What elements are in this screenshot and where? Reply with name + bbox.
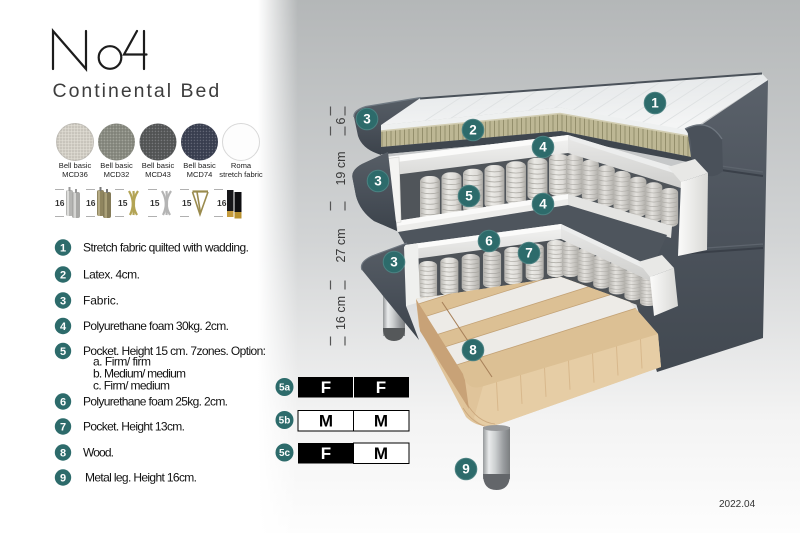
- svg-text:9: 9: [60, 473, 66, 485]
- svg-text:MCD32: MCD32: [104, 170, 130, 179]
- svg-text:5: 5: [465, 189, 473, 204]
- svg-text:5a: 5a: [279, 383, 291, 394]
- svg-text:16: 16: [217, 198, 227, 208]
- svg-text:1: 1: [60, 243, 66, 255]
- svg-text:Metal leg. Height 16cm.: Metal leg. Height 16cm.: [85, 471, 197, 485]
- svg-text:Fabric.: Fabric.: [83, 294, 119, 308]
- svg-text:1: 1: [651, 96, 659, 111]
- svg-text:F: F: [376, 378, 386, 397]
- svg-text:4: 4: [60, 321, 67, 333]
- svg-text:6: 6: [485, 234, 493, 249]
- svg-text:16 cm: 16 cm: [334, 296, 348, 330]
- svg-text:4: 4: [539, 140, 547, 155]
- svg-text:27 cm: 27 cm: [334, 228, 348, 262]
- svg-text:c. Firm/ medium: c. Firm/ medium: [93, 379, 170, 393]
- svg-text:F: F: [321, 378, 331, 397]
- svg-text:MCD74: MCD74: [187, 170, 213, 179]
- svg-text:Bell basic: Bell basic: [100, 161, 133, 170]
- svg-text:8: 8: [469, 343, 477, 358]
- svg-text:7: 7: [525, 246, 533, 261]
- svg-text:F: F: [321, 444, 331, 463]
- svg-text:Stretch fabric quilted with wa: Stretch fabric quilted with wadding.: [83, 241, 249, 255]
- svg-text:M: M: [374, 444, 388, 463]
- svg-text:6: 6: [60, 397, 66, 409]
- svg-text:Pocket. Height 13cm.: Pocket. Height 13cm.: [83, 420, 185, 434]
- svg-text:15: 15: [182, 198, 192, 208]
- svg-text:MCD36: MCD36: [62, 170, 88, 179]
- svg-text:16: 16: [86, 198, 96, 208]
- svg-text:7: 7: [60, 422, 66, 434]
- svg-text:15: 15: [150, 198, 160, 208]
- svg-text:Roma: Roma: [231, 161, 252, 170]
- svg-text:Bell basic: Bell basic: [183, 161, 216, 170]
- svg-text:19 cm: 19 cm: [334, 151, 348, 185]
- svg-text:stretch fabric: stretch fabric: [219, 170, 263, 179]
- svg-text:8: 8: [60, 448, 66, 460]
- svg-text:2: 2: [469, 123, 477, 138]
- svg-text:Bell basic: Bell basic: [142, 161, 175, 170]
- svg-text:4: 4: [539, 197, 547, 212]
- svg-text:3: 3: [60, 296, 66, 308]
- svg-text:Polyurethane foam 30kg. 2cm.: Polyurethane foam 30kg. 2cm.: [83, 319, 229, 333]
- svg-text:16: 16: [55, 198, 65, 208]
- svg-text:M: M: [319, 412, 333, 431]
- svg-text:Bell basic: Bell basic: [59, 161, 92, 170]
- svg-text:5c: 5c: [279, 448, 291, 459]
- svg-text:3: 3: [363, 112, 371, 127]
- svg-text:15: 15: [118, 198, 128, 208]
- svg-text:2022.04: 2022.04: [719, 499, 756, 510]
- svg-text:3: 3: [390, 255, 398, 270]
- svg-text:Wood.: Wood.: [83, 446, 114, 460]
- svg-text:Latex. 4cm.: Latex. 4cm.: [83, 268, 140, 282]
- svg-text:9: 9: [462, 462, 470, 477]
- svg-text:3: 3: [374, 174, 382, 189]
- svg-text:5: 5: [60, 346, 66, 358]
- svg-text:Polyurethane foam 25kg. 2cm.: Polyurethane foam 25kg. 2cm.: [83, 395, 228, 409]
- svg-text:MCD43: MCD43: [145, 170, 171, 179]
- svg-text:6: 6: [334, 117, 348, 124]
- svg-text:5b: 5b: [279, 416, 291, 427]
- svg-text:2: 2: [60, 270, 66, 282]
- svg-text:M: M: [374, 412, 388, 431]
